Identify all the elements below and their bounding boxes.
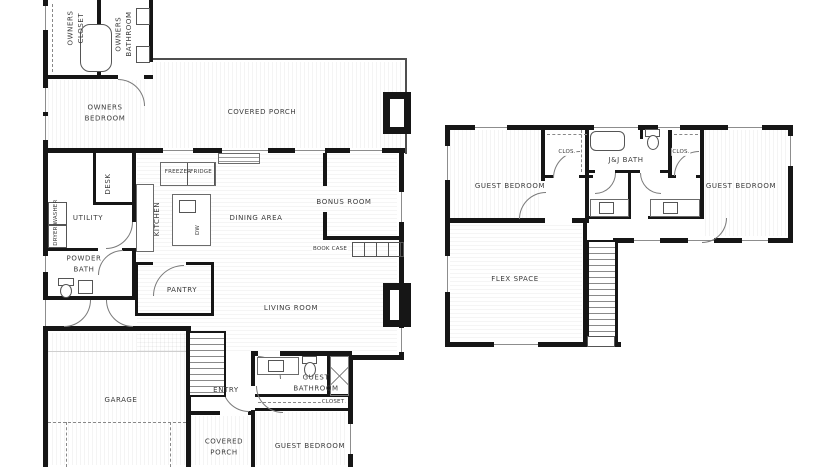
room-label-garage: GARAGE [105,395,138,406]
label-fridge: FRIDGE [190,168,212,176]
porch-door-opening [222,148,268,153]
room-label-jj-bath: J&J BATH [608,155,643,166]
wall [348,355,404,360]
room-label-living-room: LIVING ROOM [264,303,318,314]
garage-door-dashed-line [48,422,186,423]
wall [135,262,138,316]
window [445,256,450,292]
toilet-fixture [60,284,72,298]
window [742,238,768,243]
wall [585,170,595,173]
front-door-opening [43,300,48,326]
door-arc [64,300,91,327]
garage-door-dashed-line [170,422,171,467]
sink-fixture [78,280,93,294]
room-label-pantry: PANTRY [167,285,197,296]
room-label-flex-space: FLEX SPACE [491,274,539,285]
sink-fixture [136,46,150,63]
window [594,125,638,130]
wall [323,148,327,186]
window [350,148,382,153]
garage-slab-line [48,351,186,352]
door-arc [595,173,616,194]
floor-plan: OWNERS CLOSET OWNERS BATHROOM OWNERS BED… [0,0,835,467]
wall [541,125,545,181]
window [728,125,762,130]
wall [135,313,214,316]
room-label-dining-area: DINING AREA [229,213,282,224]
stairs-second-floor [587,240,617,338]
door-arc [106,300,133,327]
room-label-closet-left: CLOS. [557,148,576,156]
sink-fixture [136,8,150,25]
sink-fixture [268,360,284,372]
room-label-owners-bathroom: OWNERS BATHROOM [114,11,135,56]
room-label-bonus-room: BONUS ROOM [316,197,371,208]
label-book-case: BOOK CASE [312,245,348,253]
sink-fixture [663,202,678,214]
fireplace-porch [383,92,411,134]
room-label-owners-closet: OWNERS CLOSET [66,11,87,46]
window [348,424,353,454]
room-label-guest-bedroom-left: GUEST BEDROOM [475,181,545,192]
window [788,136,793,166]
room-label-kitchen: KITCHEN [152,202,163,237]
door-arc [98,250,123,275]
sink-fixture [179,200,196,213]
window [494,342,538,347]
stair-landing [587,336,615,347]
label-washer: WASHER [52,199,60,224]
room-label-utility: UTILITY [73,213,103,224]
closet-shelf-dashed-line [581,130,582,172]
room-label-owners-bedroom: OWNERS BEDROOM [85,103,126,124]
label-dishwasher: DW [194,225,202,235]
room-label-guest-bedroom: GUEST BEDROOM [275,441,345,452]
guest-bedroom-floor [256,412,347,465]
window [658,125,680,130]
garage-door-dashed-line [66,422,67,467]
closet-shelf-dashed-line [52,4,53,72]
room-label-closet: CLOSET [321,398,346,406]
toilet-fixture [647,135,659,150]
wall [135,262,153,265]
window [445,146,450,180]
fireplace-living [383,283,411,327]
door-arc [640,173,661,194]
label-freezer: FREEZER [165,168,191,176]
wall [93,148,96,204]
window [163,148,193,153]
room-label-guest-bathroom: GUEST BATHROOM [293,373,338,394]
closet-shelf-dashed-line [674,134,698,135]
room-label-entry: ENTRY [213,385,239,396]
wall [93,202,135,205]
wall [43,248,98,251]
wall [211,262,214,316]
window [399,328,404,352]
label-dryer: DRYER [52,226,60,245]
fireplace-box [388,97,406,129]
room-label-desk: DESK [103,173,114,194]
room-label-covered-porch: COVERED PORCH [228,107,297,118]
room-label-covered-porch-lower: COVERED PORCH [205,437,243,458]
room-label-guest-bedroom-right: GUEST BEDROOM [706,181,776,192]
sink-fixture [599,202,614,214]
wall [323,236,404,240]
porch-steps [218,153,260,164]
wall [541,175,553,178]
window [43,88,48,112]
window [43,116,48,140]
window [634,238,660,243]
window [399,192,404,222]
door-arc [106,222,133,249]
wall [186,262,214,265]
wall [640,125,643,139]
room-label-closet-right: CLOS. [671,148,690,156]
wall [122,248,135,251]
window [295,148,325,153]
bookcase [352,242,404,257]
room-label-powder-bath: POWDER BATH [67,254,102,275]
door-opening [251,386,255,410]
window [43,256,48,272]
window [43,6,48,30]
wall [700,125,704,218]
bathtub [590,131,625,151]
window [475,125,507,130]
